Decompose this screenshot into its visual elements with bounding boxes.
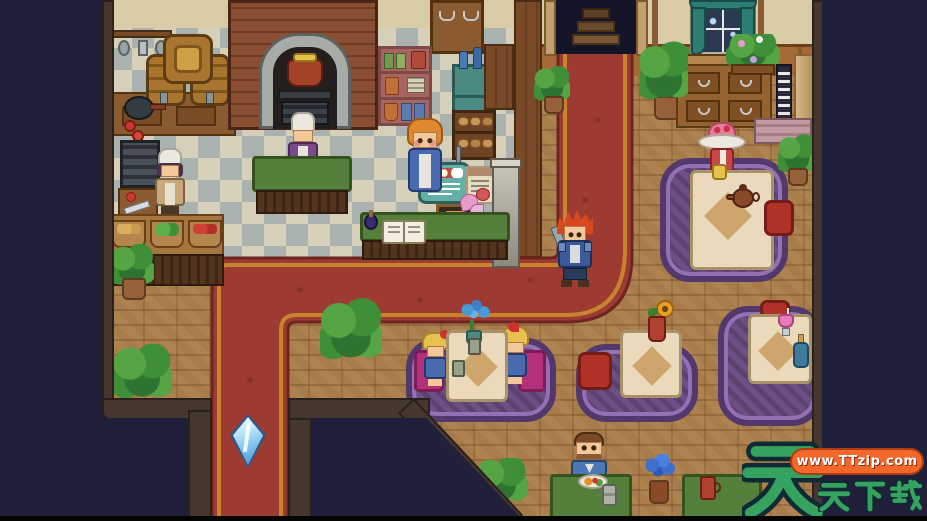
stein-mug xyxy=(468,338,481,355)
watermark-char-zai xyxy=(890,478,922,512)
dish-shelf xyxy=(378,46,432,126)
red-mug xyxy=(700,476,720,502)
plant-pot xyxy=(788,168,808,186)
seat-cushion[interactable] xyxy=(578,352,612,390)
monstera-plant xyxy=(640,40,688,104)
chef-left[interactable] xyxy=(152,148,188,216)
bush xyxy=(112,344,172,400)
honey-jar xyxy=(712,164,727,180)
player[interactable] xyxy=(554,210,596,288)
teapot xyxy=(726,184,760,210)
watermark-char-xia xyxy=(854,478,886,512)
plant-pot xyxy=(544,96,564,114)
wine-barrels[interactable] xyxy=(146,34,232,108)
brick-oven[interactable] xyxy=(228,0,378,130)
ledger-book xyxy=(382,220,426,244)
save-crystal[interactable] xyxy=(230,414,266,468)
pan-handle xyxy=(150,104,166,110)
corn-plant-pot xyxy=(122,278,146,300)
blue-flower-pot xyxy=(640,454,678,506)
outside-right xyxy=(822,0,927,521)
ladder xyxy=(776,64,792,120)
hanging-cabinet xyxy=(430,0,484,54)
letterbox-bar xyxy=(0,516,927,521)
shop-counter[interactable] xyxy=(360,212,510,260)
wall-panel xyxy=(484,44,514,110)
sunflower-vase xyxy=(640,300,676,354)
stairway-door[interactable] xyxy=(544,0,648,56)
game-canvas[interactable]: www.TTzip.com xyxy=(0,0,927,521)
man-eating[interactable] xyxy=(570,432,608,480)
light-pillar xyxy=(794,54,814,120)
watermark-url-text: www.TTzip.com xyxy=(796,454,917,469)
seat-cushion[interactable] xyxy=(764,200,794,236)
flower-planter xyxy=(726,34,780,76)
watermark-char-tian xyxy=(818,478,850,512)
ladle-icon xyxy=(118,40,130,56)
blue-bottle xyxy=(792,334,810,370)
watermark-big-char xyxy=(742,434,824,518)
map-wall xyxy=(102,0,114,404)
outside-bottom-left xyxy=(0,418,190,521)
corridor-wall xyxy=(288,410,312,521)
corridor-wall xyxy=(188,410,212,521)
bush xyxy=(320,298,382,362)
potion-bottle-icon xyxy=(364,214,378,230)
prep-table xyxy=(252,156,352,214)
stein-mug xyxy=(452,360,465,377)
watermark-url-pill: www.TTzip.com xyxy=(790,448,924,475)
gray-mug xyxy=(602,484,617,506)
